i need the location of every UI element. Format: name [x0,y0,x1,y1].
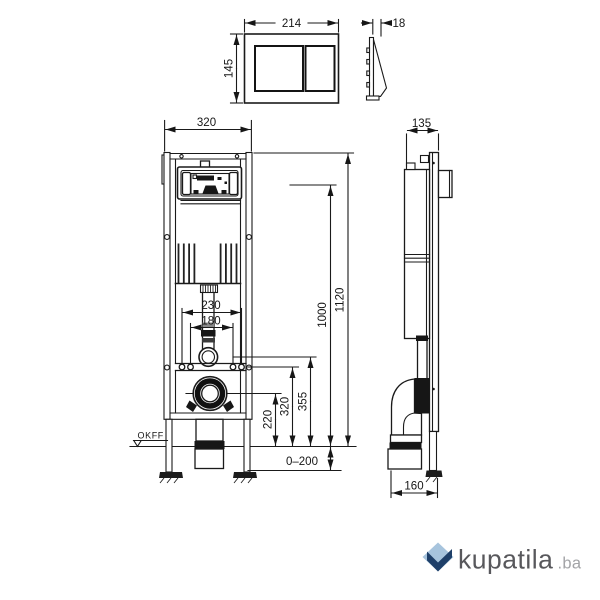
frame-front-view: OKFF 320 230 180 1 [130,117,356,483]
dim-frame-width: 320 [165,117,252,151]
dim-plate-depth-label: 18 [393,18,406,30]
dim-frame-width-label: 320 [197,117,216,129]
foot-right [233,472,257,478]
frame-rail-left [164,153,170,420]
side-foot [426,471,443,478]
dim-frame-depth-label: 135 [412,118,431,130]
flush-plate-side-view: 18 [362,18,406,100]
dim-actuation-height-label: 1000 [317,302,329,328]
dim-plate-height: 145 [224,34,243,103]
flush-plate-front-view: 214 145 [224,18,339,103]
flush-button-small [306,46,335,91]
floor-level-label: OKFF [138,431,164,441]
watermark-logo: kupatila .ba [423,543,582,575]
dim-leg-adjustment-label: 0–200 [286,456,318,468]
drain-pipe [195,419,225,468]
dim-fixing-height-label: 320 [280,397,292,416]
dim-outlet-offset-label: 160 [404,481,423,493]
dim-bolt-inner-label: 180 [201,316,220,328]
drain-socket [388,449,422,469]
drain-connector [415,378,430,414]
brand-name: kupatila [458,545,553,575]
dim-leg-adjustment: 0–200 [248,448,341,471]
floor-level-marker: OKFF [134,431,168,447]
foot-left [159,472,183,478]
dim-outlet-height-label: 220 [263,410,275,429]
dim-bracket-height-label: 355 [298,392,310,411]
dim-fixing-height: 320 [248,367,299,446]
datum-triangle-icon [134,441,141,447]
side-leg [430,432,437,471]
technical-drawing-page: 214 145 18 [0,0,600,600]
wc-frame-dimension-drawing: 214 145 18 [0,0,600,600]
frame-side-view: 135 160 [388,118,452,498]
dim-plate-height-label: 145 [224,59,236,78]
dim-plate-width-label: 214 [282,18,302,30]
dim-plate-depth: 18 [362,18,406,36]
inspection-opening [178,161,242,204]
flush-button-large [255,46,303,91]
dim-plate-width: 214 [245,18,339,32]
dim-total-height-label: 1120 [335,288,347,313]
plate-side-wedge [374,40,387,97]
drain-outlet-ring [186,377,281,412]
plate-side-body [370,38,374,99]
dim-bolt-outer-label: 230 [201,300,220,312]
frame-rail-right [246,153,252,420]
brand-tld: .ba [558,555,582,573]
dim-outlet-height: 220 [263,395,276,446]
drain-bend-side [388,378,430,469]
cistern-ribs [179,244,237,284]
